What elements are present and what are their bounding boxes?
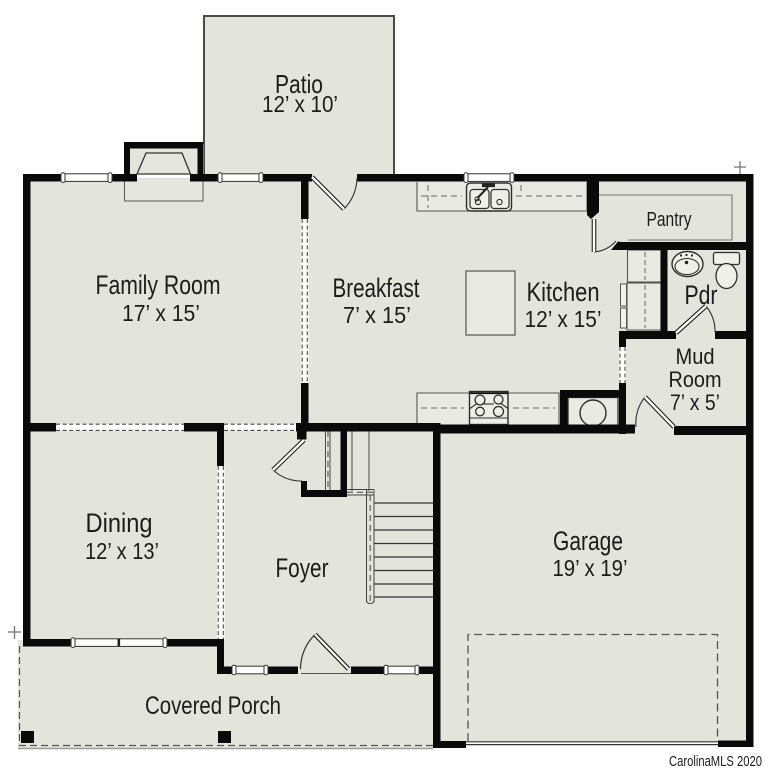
svg-text:Pantry: Pantry (647, 209, 692, 231)
svg-text:Covered Porch: Covered Porch (145, 692, 281, 720)
svg-text:Mud: Mud (676, 344, 715, 369)
svg-text:Breakfast: Breakfast (333, 273, 420, 303)
svg-text:12’ x 13’: 12’ x 13’ (85, 538, 159, 564)
svg-text:Garage: Garage (553, 526, 623, 556)
svg-text:12’ x 15’: 12’ x 15’ (525, 306, 602, 332)
svg-text:Kitchen: Kitchen (527, 277, 600, 307)
svg-text:19’ x 19’: 19’ x 19’ (553, 555, 628, 581)
svg-text:CarolinaMLS 2020: CarolinaMLS 2020 (669, 754, 762, 768)
svg-text:7’ x 5’: 7’ x 5’ (670, 390, 720, 415)
svg-text:Pdr: Pdr (685, 280, 718, 310)
svg-text:Foyer: Foyer (276, 553, 329, 583)
svg-text:Dining: Dining (86, 508, 153, 538)
svg-text:17’ x 15’: 17’ x 15’ (122, 300, 200, 326)
svg-text:Family Room: Family Room (96, 270, 221, 300)
svg-text:7’ x 15’: 7’ x 15’ (343, 302, 411, 328)
svg-text:Room: Room (669, 367, 722, 392)
svg-text:12’ x 10’: 12’ x 10’ (262, 91, 338, 117)
